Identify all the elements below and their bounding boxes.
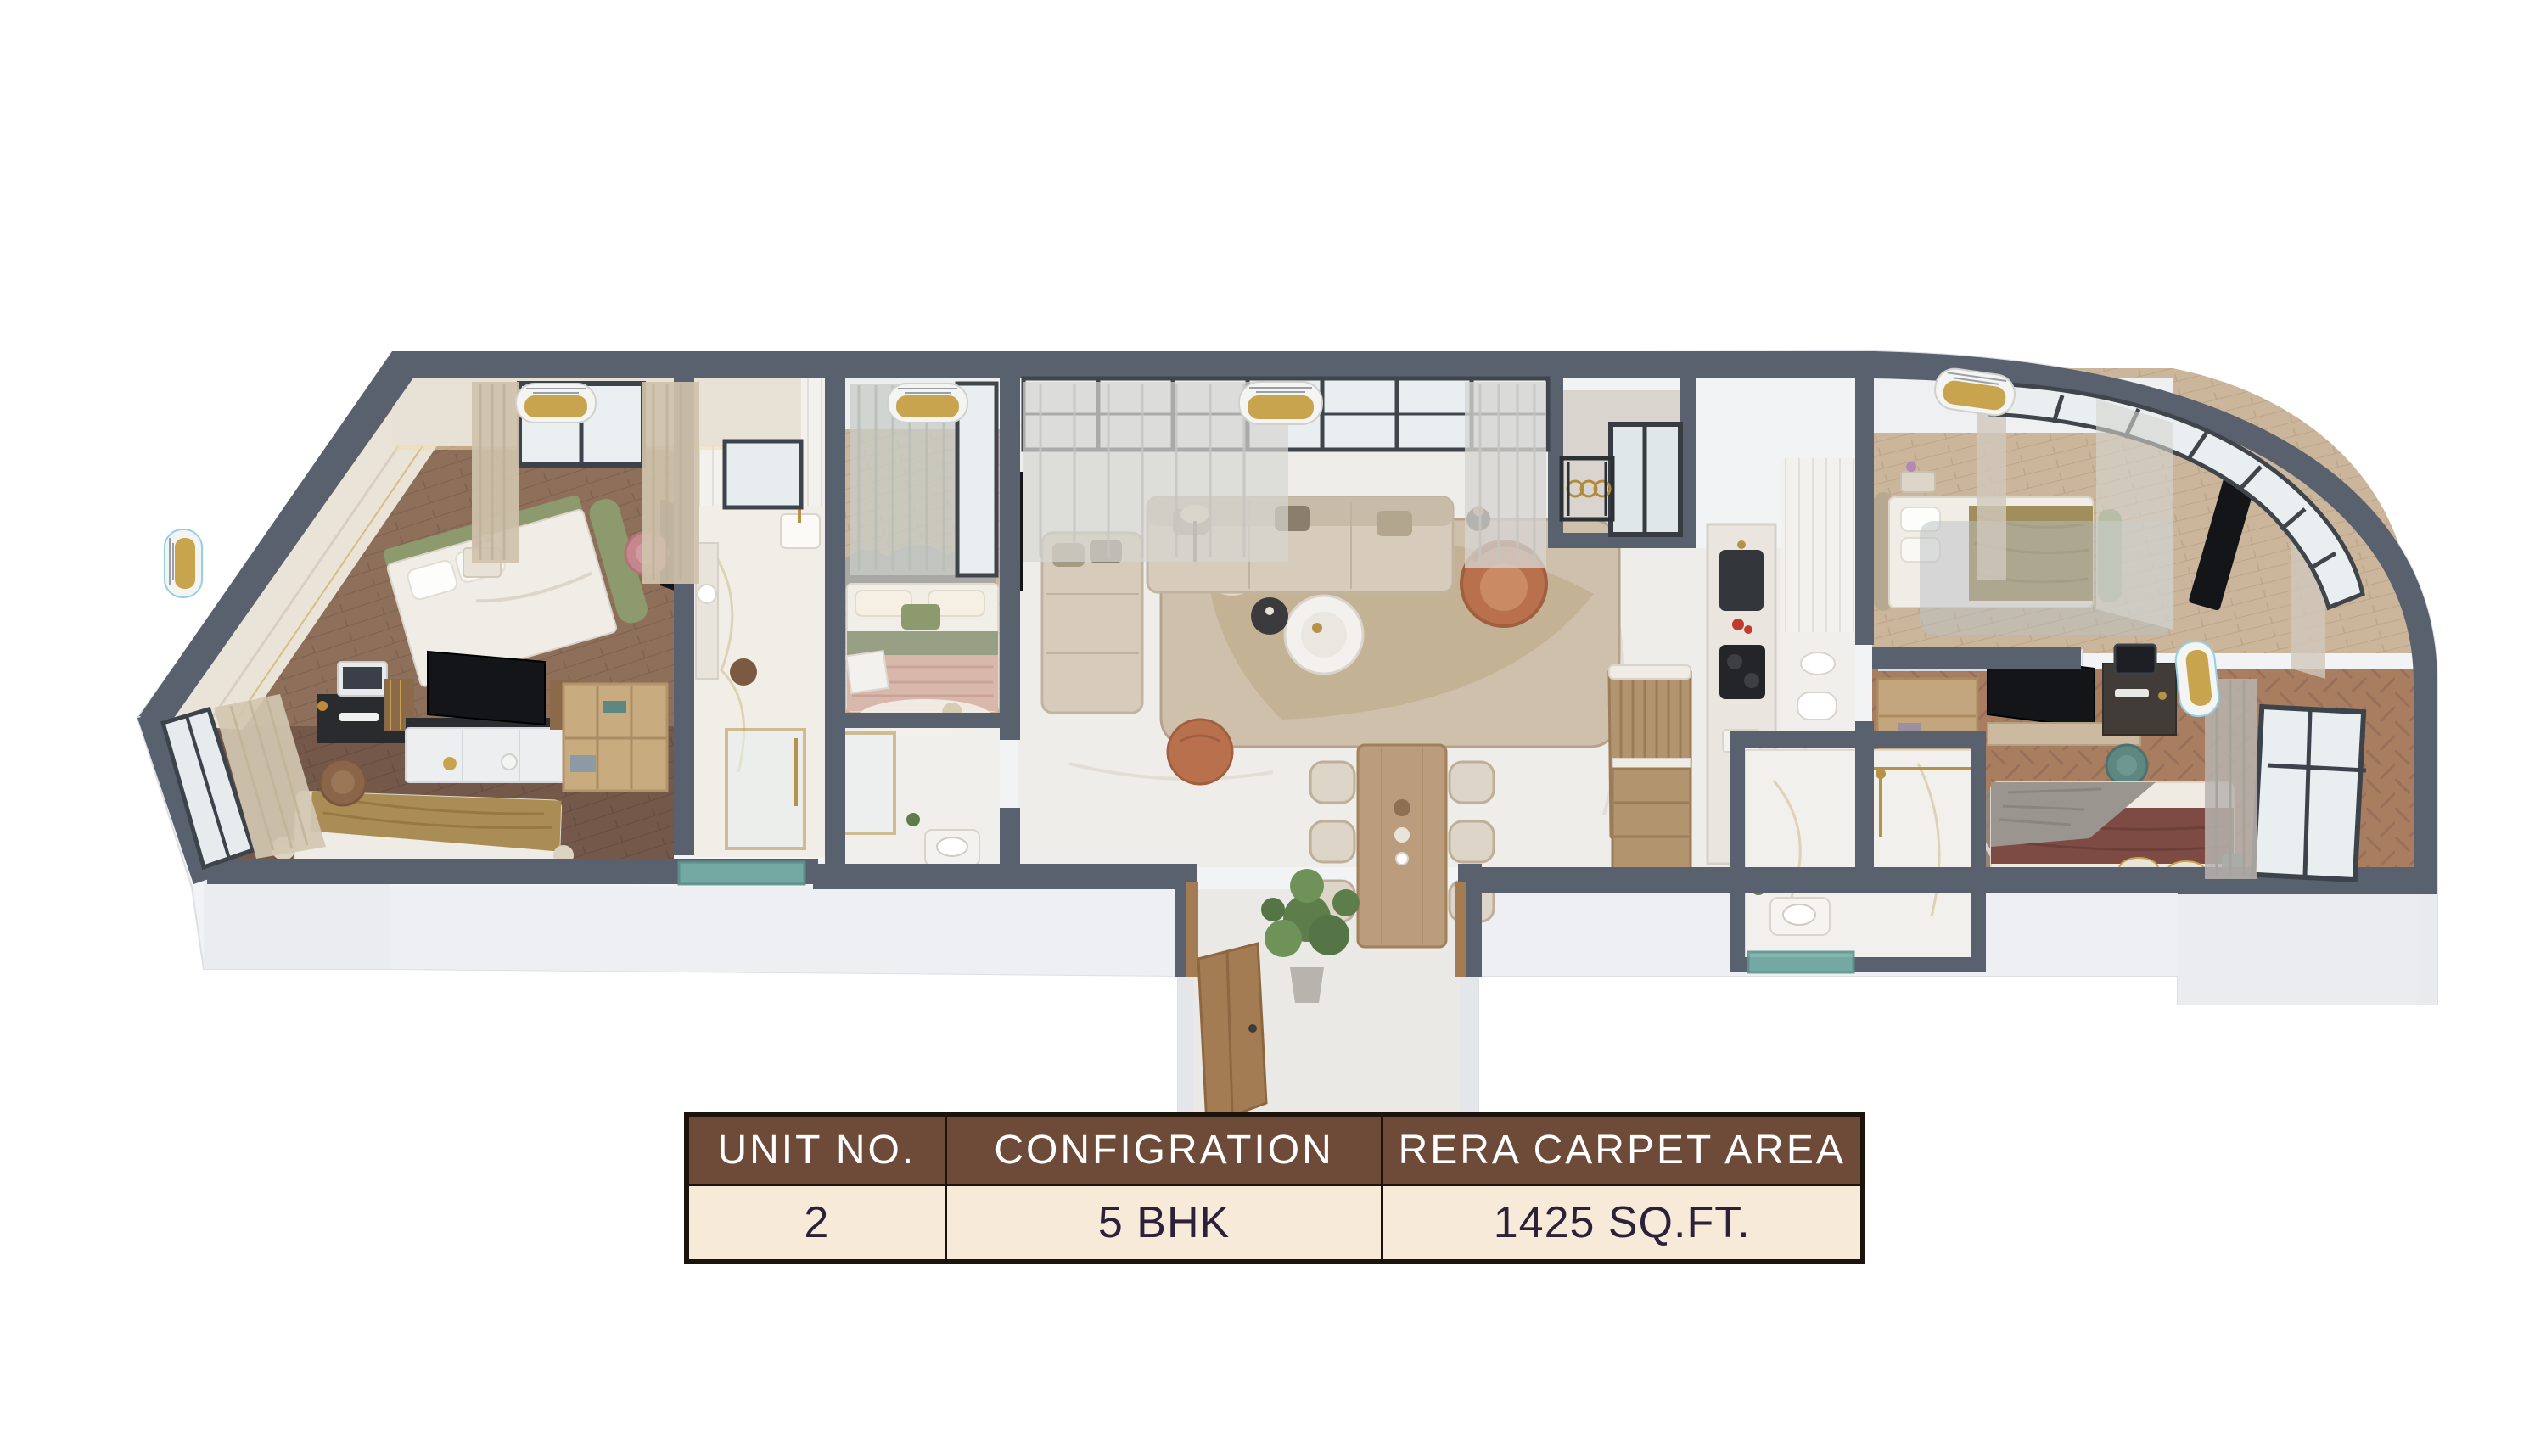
plant xyxy=(906,813,920,826)
tv-console xyxy=(406,728,575,782)
partition-wall xyxy=(825,378,845,867)
right-wall xyxy=(2414,696,2437,893)
sink xyxy=(698,585,716,603)
ac-unit xyxy=(1239,382,1322,424)
partition-wall xyxy=(1855,368,1874,645)
kitchen-sink xyxy=(1719,550,1764,611)
desk xyxy=(846,651,889,693)
side-table xyxy=(1251,597,1288,635)
sheer-curtain xyxy=(2096,399,2173,630)
toilet-floor xyxy=(1781,632,1855,742)
keyboard xyxy=(2115,689,2149,697)
ac-unit xyxy=(165,529,202,597)
shower xyxy=(726,730,805,848)
glass-strip xyxy=(1748,952,1853,972)
decor xyxy=(443,757,457,770)
bathroom-wall xyxy=(1730,740,1745,972)
base-face xyxy=(390,886,1178,976)
bottom-wall xyxy=(1478,867,2183,893)
sink xyxy=(937,837,967,856)
nightstand xyxy=(1901,472,1935,492)
stool xyxy=(730,658,757,686)
sink xyxy=(1783,904,1815,925)
rera-carpet-area-value: 1425 SQ.FT. xyxy=(1383,1186,1860,1259)
base-face xyxy=(204,881,390,969)
bathroom-wall xyxy=(1971,740,1986,972)
curtain xyxy=(1977,399,2006,580)
dining-table xyxy=(1358,745,1446,947)
configuration-value: 5 BHK xyxy=(947,1186,1382,1259)
curtain xyxy=(642,382,699,584)
bottom-wall xyxy=(813,864,1178,889)
page: UNIT NO. CONFIGRATION RERA CARPET AREA 2… xyxy=(0,0,2546,1456)
bathroom-wall xyxy=(1730,731,1986,748)
bed-throw xyxy=(847,631,998,655)
base-face xyxy=(2178,894,2417,1005)
accent-pillow xyxy=(901,604,940,630)
folded-clothes xyxy=(603,701,626,713)
base-face xyxy=(1460,976,1478,1132)
unit-info-table: UNIT NO. CONFIGRATION RERA CARPET AREA 2… xyxy=(684,1112,1865,1264)
rera-carpet-area-header: RERA CARPET AREA xyxy=(1383,1117,1860,1184)
pouf xyxy=(1168,720,1232,784)
fruit-bowl xyxy=(1732,619,1744,630)
toilet-tile-wall xyxy=(1781,458,1855,632)
partition-wall xyxy=(845,713,1000,728)
door-handle xyxy=(1248,1024,1257,1033)
window xyxy=(725,441,801,507)
partition-wall xyxy=(1000,378,1020,740)
tv-screen xyxy=(428,652,545,725)
keyboard xyxy=(339,713,379,721)
top-wall xyxy=(392,351,1876,378)
monitor xyxy=(2115,645,2156,674)
sink xyxy=(1801,652,1835,675)
basket xyxy=(570,755,596,772)
ac-unit xyxy=(2174,640,2221,718)
configuration-header: CONFIGRATION xyxy=(947,1117,1382,1184)
cooktop xyxy=(1719,645,1765,699)
unit-no-header: UNIT NO. xyxy=(689,1117,945,1184)
flower-vase xyxy=(1906,462,1916,472)
base-face xyxy=(1178,976,1193,1132)
curtain xyxy=(472,382,519,563)
shower-head xyxy=(1876,769,1886,779)
gold-faucet xyxy=(1737,540,1746,549)
pillow xyxy=(1377,511,1412,536)
unit-no-value: 2 xyxy=(689,1186,945,1259)
partition-wall xyxy=(1000,808,1020,871)
partition-wall xyxy=(1872,647,2081,669)
glass-strip xyxy=(679,862,805,884)
toilet xyxy=(1797,692,1837,720)
ac-unit xyxy=(888,384,967,423)
ac-unit xyxy=(516,384,596,423)
console-cabinet xyxy=(1612,769,1691,872)
decor xyxy=(1394,799,1410,816)
